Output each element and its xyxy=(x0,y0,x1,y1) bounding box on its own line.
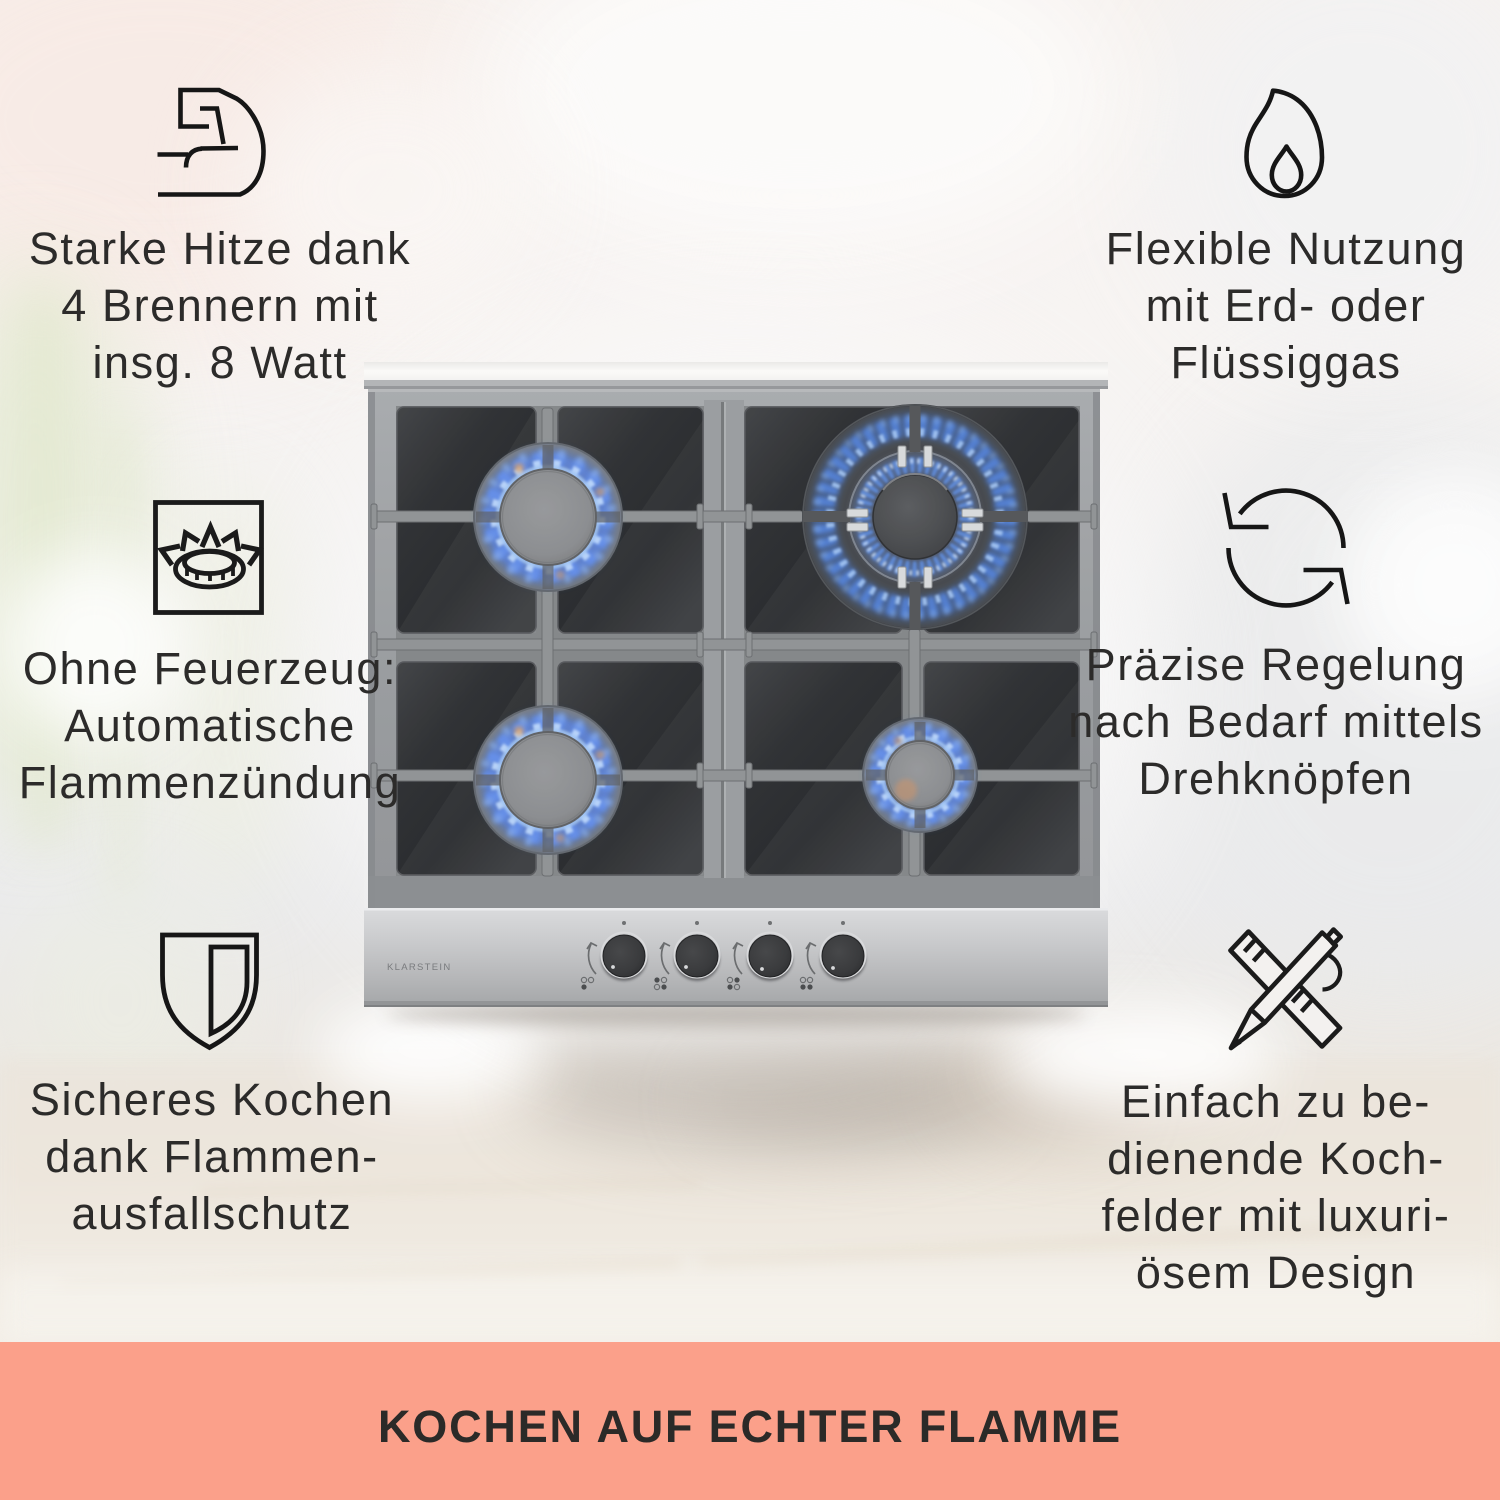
svg-text:KLARSTEIN: KLARSTEIN xyxy=(387,962,452,973)
